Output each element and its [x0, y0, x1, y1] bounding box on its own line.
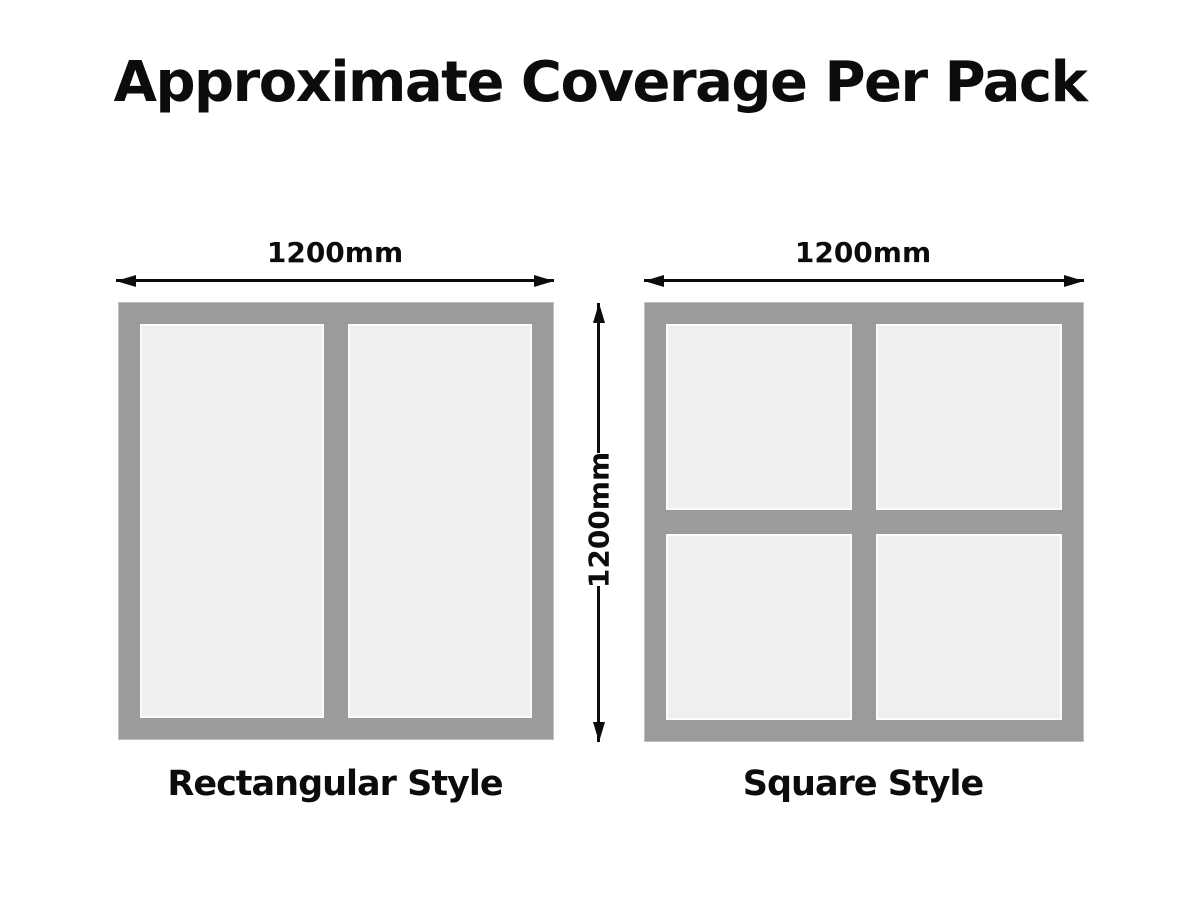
height-dimension-arrow-upper-icon [597, 303, 600, 453]
glass-panel [348, 324, 532, 718]
left-diagram-caption: Rectangular Style [135, 764, 535, 804]
right-diagram-caption: Square Style [663, 764, 1063, 804]
height-dimension-arrow-lower-icon [597, 586, 600, 742]
left-width-dimension-arrow-icon [116, 279, 554, 282]
page-title: Approximate Coverage Per Pack [0, 50, 1200, 115]
right-width-dimension-label: 1200mm [663, 236, 1063, 269]
square-pack-frame [644, 302, 1084, 742]
right-width-dimension-arrow-icon [644, 279, 1084, 282]
glass-panel [876, 324, 1062, 510]
rectangular-pack-frame [118, 302, 554, 740]
glass-panel [876, 534, 1062, 720]
coverage-infographic: Approximate Coverage Per Pack 1200mm Rec… [0, 0, 1200, 900]
glass-panel [140, 324, 324, 718]
left-width-dimension-label: 1200mm [135, 236, 535, 269]
glass-panel [666, 324, 852, 510]
glass-panel [666, 534, 852, 720]
height-dimension-label: 1200mm [583, 452, 616, 588]
